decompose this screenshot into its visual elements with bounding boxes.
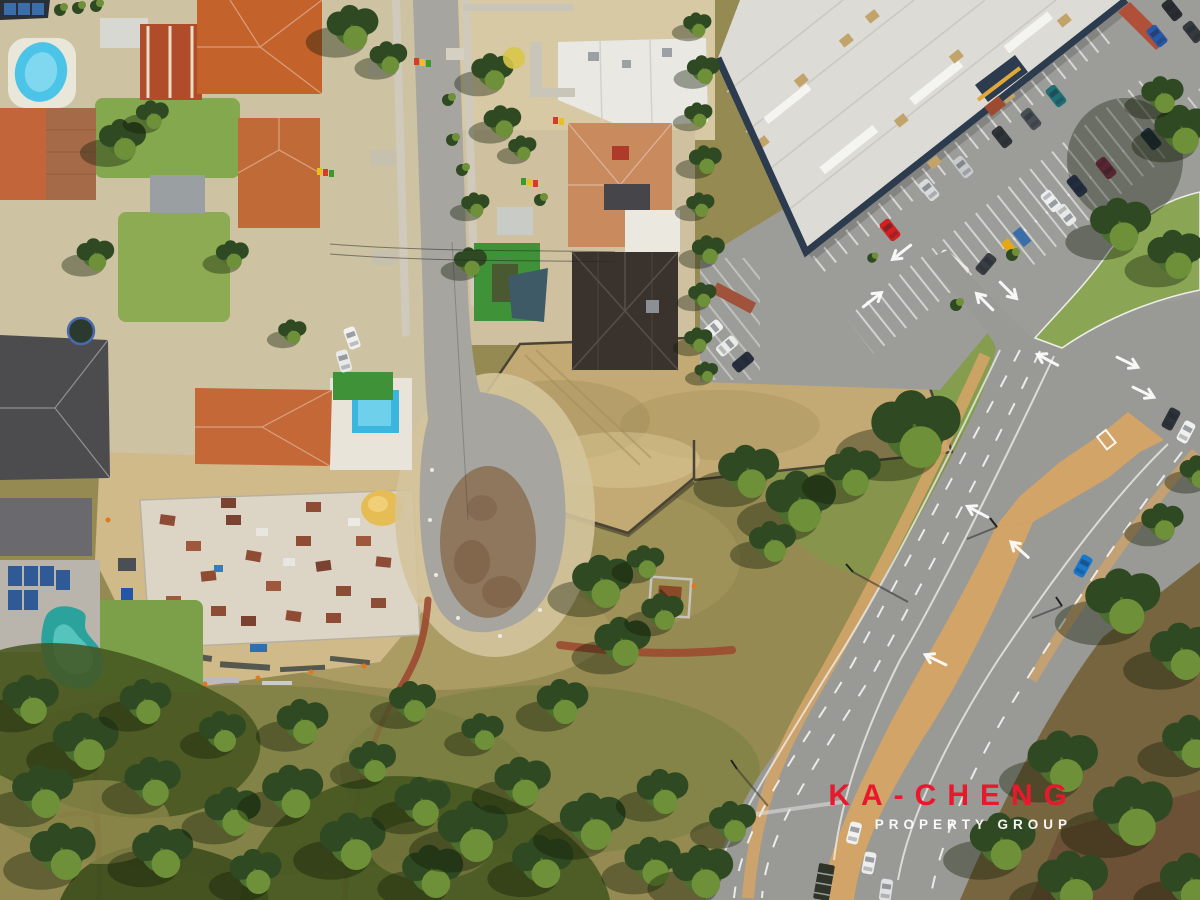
watermark-brand: KA-CHENG xyxy=(828,781,1078,811)
turf-strip xyxy=(333,372,393,400)
ac-unit xyxy=(646,300,659,313)
blue-tarp xyxy=(250,644,267,652)
shade-sail xyxy=(508,268,548,322)
grey-roof xyxy=(0,498,92,556)
grey-shed xyxy=(150,175,205,213)
sand-pile-top xyxy=(368,496,388,512)
aerial-photo: KA-CHENG PROPERTY GROUP xyxy=(0,0,1200,900)
dirt-blotch xyxy=(467,495,497,521)
dirt-blotch xyxy=(482,576,522,608)
watermark: KA-CHENG PROPERTY GROUP xyxy=(828,781,1067,832)
flat-roof-section xyxy=(604,184,650,210)
dirt-blotch xyxy=(454,540,490,584)
utility-shed xyxy=(497,207,533,235)
rect-pool-light xyxy=(358,396,391,426)
chimney xyxy=(612,146,629,160)
blue-tarp xyxy=(214,565,223,572)
terracotta-roof xyxy=(0,108,46,200)
site-shed xyxy=(118,558,136,571)
carport-roof xyxy=(625,210,680,252)
solar-panels xyxy=(4,3,44,15)
flowering-tree xyxy=(503,47,525,69)
aerial-scene xyxy=(0,0,1200,900)
watermark-tagline: PROPERTY GROUP xyxy=(828,818,1072,832)
